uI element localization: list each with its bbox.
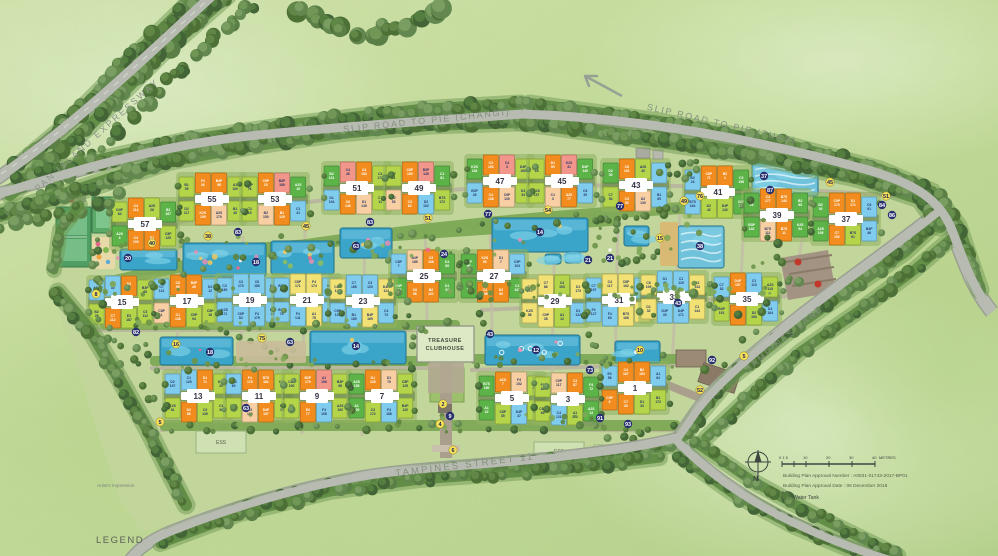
svg-text:62: 62 bbox=[408, 204, 412, 208]
svg-text:25: 25 bbox=[420, 272, 429, 281]
svg-text:103: 103 bbox=[514, 264, 520, 268]
svg-text:76: 76 bbox=[248, 187, 252, 191]
svg-text:CLUBHOUSE: CLUBHOUSE bbox=[426, 346, 465, 352]
svg-text:24: 24 bbox=[691, 180, 695, 184]
svg-text:58: 58 bbox=[608, 376, 612, 380]
svg-text:100: 100 bbox=[289, 384, 295, 388]
svg-text:12: 12 bbox=[533, 348, 539, 354]
svg-text:43: 43 bbox=[675, 301, 681, 307]
svg-text:55: 55 bbox=[185, 187, 189, 191]
svg-text:197: 197 bbox=[170, 384, 176, 388]
svg-text:119: 119 bbox=[678, 281, 684, 285]
svg-text:40: 40 bbox=[872, 455, 877, 460]
svg-text:16: 16 bbox=[173, 342, 179, 348]
svg-text:63: 63 bbox=[243, 406, 249, 412]
svg-text:14: 14 bbox=[589, 411, 593, 415]
svg-text:160: 160 bbox=[222, 288, 228, 292]
svg-text:6: 6 bbox=[451, 448, 454, 454]
svg-text:55: 55 bbox=[208, 195, 217, 204]
svg-text:115: 115 bbox=[767, 287, 773, 291]
svg-text:34: 34 bbox=[521, 193, 525, 197]
svg-text:63: 63 bbox=[608, 316, 612, 320]
svg-text:61: 61 bbox=[171, 408, 175, 412]
svg-text:77: 77 bbox=[617, 204, 623, 210]
svg-text:40: 40 bbox=[149, 241, 155, 247]
svg-text:3: 3 bbox=[566, 395, 571, 404]
svg-text:69: 69 bbox=[445, 264, 449, 268]
svg-text:64: 64 bbox=[118, 212, 122, 216]
svg-text:29: 29 bbox=[551, 297, 560, 306]
svg-text:196: 196 bbox=[321, 380, 327, 384]
svg-text:171: 171 bbox=[678, 313, 684, 317]
svg-text:86: 86 bbox=[187, 412, 191, 416]
svg-text:35: 35 bbox=[583, 193, 587, 197]
svg-text:82: 82 bbox=[133, 330, 139, 336]
svg-text:77: 77 bbox=[306, 412, 310, 416]
svg-text:185: 185 bbox=[254, 284, 260, 288]
svg-text:193: 193 bbox=[559, 285, 565, 289]
svg-text:192: 192 bbox=[834, 235, 840, 239]
svg-text:21: 21 bbox=[607, 256, 613, 262]
svg-text:175: 175 bbox=[834, 203, 840, 207]
svg-text:83: 83 bbox=[367, 220, 373, 226]
svg-text:193: 193 bbox=[133, 240, 139, 244]
svg-text:110: 110 bbox=[751, 283, 757, 287]
svg-text:TREASURE: TREASURE bbox=[428, 338, 462, 344]
svg-text:117: 117 bbox=[607, 284, 613, 288]
svg-text:12: 12 bbox=[208, 289, 212, 293]
svg-text:83: 83 bbox=[235, 230, 241, 236]
svg-text:172: 172 bbox=[439, 200, 445, 204]
svg-text:45: 45 bbox=[827, 180, 833, 186]
svg-text:37: 37 bbox=[761, 174, 767, 180]
svg-text:87: 87 bbox=[767, 188, 773, 194]
svg-text:1: 1 bbox=[633, 384, 638, 393]
svg-text:94: 94 bbox=[192, 317, 196, 321]
svg-text:7: 7 bbox=[398, 264, 400, 268]
svg-text:42: 42 bbox=[707, 208, 711, 212]
svg-text:84: 84 bbox=[879, 203, 886, 209]
svg-text:17: 17 bbox=[183, 297, 192, 306]
svg-text:120: 120 bbox=[402, 408, 408, 412]
svg-text:152: 152 bbox=[516, 382, 522, 386]
svg-text:100: 100 bbox=[232, 187, 238, 191]
svg-text:64: 64 bbox=[656, 376, 660, 380]
svg-text:53: 53 bbox=[271, 195, 280, 204]
svg-text:35: 35 bbox=[501, 414, 505, 418]
svg-text:105: 105 bbox=[818, 231, 824, 235]
svg-text:METRES: METRES bbox=[879, 455, 896, 460]
svg-text:7: 7 bbox=[500, 260, 502, 264]
svg-text:130: 130 bbox=[640, 201, 646, 205]
svg-text:41: 41 bbox=[567, 165, 571, 169]
svg-text:174: 174 bbox=[311, 284, 317, 288]
svg-text:197: 197 bbox=[591, 288, 597, 292]
svg-text:15: 15 bbox=[657, 236, 663, 242]
svg-text:61: 61 bbox=[851, 235, 855, 239]
svg-text:142: 142 bbox=[749, 227, 755, 231]
svg-text:11: 11 bbox=[782, 231, 786, 235]
svg-text:160: 160 bbox=[484, 386, 490, 390]
svg-text:125: 125 bbox=[186, 380, 192, 384]
svg-text:0 1 5: 0 1 5 bbox=[779, 455, 789, 460]
svg-text:140: 140 bbox=[781, 199, 787, 203]
svg-text:92: 92 bbox=[709, 358, 715, 364]
svg-text:9: 9 bbox=[448, 414, 451, 420]
svg-text:38: 38 bbox=[544, 317, 548, 321]
svg-text:46: 46 bbox=[867, 231, 871, 235]
svg-text:194: 194 bbox=[639, 372, 645, 376]
svg-text:198: 198 bbox=[738, 180, 744, 184]
svg-text:72: 72 bbox=[589, 387, 593, 391]
svg-text:81: 81 bbox=[440, 176, 444, 180]
svg-text:41: 41 bbox=[714, 188, 723, 197]
svg-text:26: 26 bbox=[150, 208, 154, 212]
svg-text:153: 153 bbox=[361, 172, 367, 176]
svg-text:ESS: ESS bbox=[216, 440, 227, 446]
svg-text:86: 86 bbox=[544, 285, 548, 289]
svg-text:12: 12 bbox=[560, 317, 564, 321]
svg-text:171: 171 bbox=[295, 284, 301, 288]
svg-text:131: 131 bbox=[159, 289, 165, 293]
svg-text:57: 57 bbox=[141, 220, 150, 229]
svg-text:98: 98 bbox=[413, 292, 417, 296]
svg-text:Building Plan Approval Date :: Building Plan Approval Date : 06 Decembe… bbox=[783, 483, 888, 489]
svg-text:90: 90 bbox=[499, 292, 503, 296]
svg-text:51: 51 bbox=[353, 184, 362, 193]
svg-text:24: 24 bbox=[441, 252, 448, 258]
svg-text:87: 87 bbox=[573, 383, 577, 387]
svg-text:109: 109 bbox=[200, 215, 206, 219]
svg-text:63: 63 bbox=[353, 244, 359, 250]
svg-text:53: 53 bbox=[625, 201, 629, 205]
svg-text:49: 49 bbox=[415, 184, 424, 193]
svg-text:45: 45 bbox=[303, 224, 309, 230]
svg-text:164: 164 bbox=[767, 311, 773, 315]
svg-text:N: N bbox=[753, 476, 758, 483]
svg-text:60: 60 bbox=[232, 384, 236, 388]
svg-text:58: 58 bbox=[528, 313, 532, 317]
svg-text:26: 26 bbox=[473, 193, 477, 197]
svg-text:Artist's Impression: Artist's Impression bbox=[97, 483, 135, 488]
svg-text:53: 53 bbox=[392, 200, 396, 204]
svg-text:63: 63 bbox=[287, 340, 293, 346]
svg-text:125: 125 bbox=[370, 380, 376, 384]
svg-text:95: 95 bbox=[551, 165, 555, 169]
svg-text:22: 22 bbox=[485, 410, 489, 414]
svg-text:2: 2 bbox=[441, 402, 444, 408]
svg-text:5: 5 bbox=[510, 394, 515, 403]
svg-text:130: 130 bbox=[504, 197, 510, 201]
svg-text:129: 129 bbox=[279, 215, 285, 219]
svg-text:19: 19 bbox=[246, 296, 255, 305]
svg-text:49: 49 bbox=[192, 285, 196, 289]
svg-text:23: 23 bbox=[359, 297, 368, 306]
svg-text:168: 168 bbox=[623, 316, 629, 320]
svg-text:169: 169 bbox=[407, 172, 413, 176]
svg-text:70: 70 bbox=[387, 380, 391, 384]
svg-text:52: 52 bbox=[697, 388, 703, 394]
svg-text:51: 51 bbox=[883, 194, 889, 200]
svg-text:146: 146 bbox=[345, 204, 351, 208]
svg-text:187: 187 bbox=[126, 318, 132, 322]
svg-text:4: 4 bbox=[119, 236, 121, 240]
svg-text:106: 106 bbox=[428, 260, 434, 264]
svg-text:131: 131 bbox=[329, 176, 335, 180]
svg-text:47: 47 bbox=[496, 177, 505, 186]
svg-text:170: 170 bbox=[238, 284, 244, 288]
svg-text:21: 21 bbox=[303, 296, 312, 305]
svg-text:84: 84 bbox=[239, 316, 243, 320]
svg-text:98: 98 bbox=[338, 384, 342, 388]
svg-text:155: 155 bbox=[354, 384, 360, 388]
svg-text:177: 177 bbox=[765, 199, 771, 203]
svg-text:114: 114 bbox=[133, 208, 139, 212]
svg-text:169: 169 bbox=[367, 317, 373, 321]
svg-text:164: 164 bbox=[690, 204, 696, 208]
svg-text:140: 140 bbox=[582, 169, 588, 173]
svg-text:54: 54 bbox=[609, 197, 613, 201]
svg-text:77: 77 bbox=[485, 212, 491, 218]
svg-text:142: 142 bbox=[722, 208, 728, 212]
svg-text:40: 40 bbox=[624, 404, 628, 408]
svg-text:157: 157 bbox=[735, 283, 741, 287]
svg-text:35: 35 bbox=[663, 313, 667, 317]
svg-text:71: 71 bbox=[707, 176, 711, 180]
svg-text:179: 179 bbox=[254, 316, 260, 320]
svg-text:43: 43 bbox=[487, 332, 493, 338]
svg-text:Water Tank: Water Tank bbox=[793, 495, 819, 501]
svg-text:40: 40 bbox=[641, 169, 645, 173]
svg-text:138: 138 bbox=[175, 317, 181, 321]
svg-text:102: 102 bbox=[423, 204, 429, 208]
svg-text:48: 48 bbox=[346, 172, 350, 176]
svg-text:51: 51 bbox=[425, 216, 431, 222]
svg-text:15: 15 bbox=[118, 298, 127, 307]
svg-text:3: 3 bbox=[552, 197, 554, 201]
svg-text:8: 8 bbox=[94, 292, 97, 298]
svg-text:73: 73 bbox=[384, 313, 388, 317]
svg-text:65: 65 bbox=[657, 197, 661, 201]
svg-text:33: 33 bbox=[640, 404, 644, 408]
svg-text:91: 91 bbox=[597, 416, 603, 422]
svg-text:10: 10 bbox=[637, 348, 643, 354]
svg-text:78: 78 bbox=[312, 316, 316, 320]
svg-text:191: 191 bbox=[719, 311, 725, 315]
svg-text:5: 5 bbox=[742, 354, 745, 360]
svg-text:117: 117 bbox=[184, 211, 190, 215]
svg-text:93: 93 bbox=[625, 422, 631, 428]
svg-text:121: 121 bbox=[428, 292, 434, 296]
svg-text:43: 43 bbox=[632, 181, 641, 190]
svg-text:15: 15 bbox=[264, 183, 268, 187]
svg-text:179: 179 bbox=[305, 380, 311, 384]
svg-text:47: 47 bbox=[517, 414, 521, 418]
svg-text:1: 1 bbox=[724, 176, 726, 180]
svg-text:5: 5 bbox=[158, 420, 161, 426]
svg-text:16: 16 bbox=[201, 183, 205, 187]
svg-text:14: 14 bbox=[537, 230, 544, 236]
svg-text:35: 35 bbox=[743, 295, 752, 304]
svg-text:18: 18 bbox=[207, 350, 213, 356]
svg-text:189: 189 bbox=[412, 260, 418, 264]
svg-text:59: 59 bbox=[483, 260, 487, 264]
svg-text:127: 127 bbox=[591, 312, 597, 316]
svg-text:38: 38 bbox=[205, 234, 211, 240]
svg-text:30: 30 bbox=[609, 173, 613, 177]
svg-text:193: 193 bbox=[488, 165, 494, 169]
svg-text:186: 186 bbox=[386, 412, 392, 416]
svg-text:11: 11 bbox=[378, 200, 382, 204]
svg-text:3: 3 bbox=[506, 165, 508, 169]
svg-text:13: 13 bbox=[194, 392, 203, 401]
svg-text:45: 45 bbox=[558, 177, 567, 186]
svg-text:104: 104 bbox=[329, 200, 335, 204]
svg-text:181: 181 bbox=[263, 380, 269, 384]
svg-text:40: 40 bbox=[233, 211, 237, 215]
svg-text:21: 21 bbox=[585, 258, 591, 264]
svg-text:109: 109 bbox=[646, 285, 652, 289]
svg-text:65: 65 bbox=[541, 411, 545, 415]
svg-text:107: 107 bbox=[263, 412, 269, 416]
svg-text:191: 191 bbox=[624, 169, 630, 173]
svg-text:114: 114 bbox=[383, 289, 389, 293]
svg-text:98: 98 bbox=[217, 183, 221, 187]
svg-text:160: 160 bbox=[520, 169, 526, 173]
svg-text:92: 92 bbox=[819, 207, 823, 211]
svg-text:7: 7 bbox=[502, 382, 504, 386]
svg-text:120: 120 bbox=[367, 285, 373, 289]
svg-text:189: 189 bbox=[279, 183, 285, 187]
svg-text:LEGEND: LEGEND bbox=[96, 535, 144, 546]
svg-text:76: 76 bbox=[697, 194, 703, 200]
svg-text:149: 149 bbox=[361, 204, 367, 208]
svg-text:118: 118 bbox=[472, 169, 478, 173]
svg-text:16: 16 bbox=[296, 187, 300, 191]
svg-text:18: 18 bbox=[253, 260, 259, 266]
svg-text:94: 94 bbox=[798, 227, 802, 231]
svg-text:162: 162 bbox=[623, 284, 629, 288]
svg-text:139: 139 bbox=[202, 412, 208, 416]
svg-text:9: 9 bbox=[315, 392, 320, 401]
svg-text:75: 75 bbox=[259, 336, 265, 342]
svg-text:141: 141 bbox=[295, 316, 301, 320]
svg-text:112: 112 bbox=[142, 314, 148, 318]
svg-text:39: 39 bbox=[773, 211, 782, 220]
svg-text:77: 77 bbox=[567, 197, 571, 201]
svg-text:49: 49 bbox=[681, 199, 687, 205]
svg-text:145: 145 bbox=[423, 172, 429, 176]
svg-text:82: 82 bbox=[720, 287, 724, 291]
svg-text:30: 30 bbox=[849, 455, 854, 460]
svg-text:95: 95 bbox=[798, 203, 802, 207]
svg-text:167: 167 bbox=[623, 372, 629, 376]
svg-text:18: 18 bbox=[208, 313, 212, 317]
svg-text:71: 71 bbox=[203, 380, 207, 384]
svg-text:125: 125 bbox=[402, 384, 408, 388]
svg-text:54: 54 bbox=[545, 208, 552, 214]
svg-text:144: 144 bbox=[694, 309, 700, 313]
svg-text:1: 1 bbox=[161, 313, 163, 317]
svg-text:38: 38 bbox=[697, 244, 703, 250]
svg-text:171: 171 bbox=[850, 203, 856, 207]
svg-text:27: 27 bbox=[490, 272, 499, 281]
svg-text:6: 6 bbox=[609, 400, 611, 404]
svg-text:91: 91 bbox=[867, 207, 871, 211]
svg-text:108: 108 bbox=[321, 412, 327, 416]
svg-text:117: 117 bbox=[556, 383, 562, 387]
svg-text:111: 111 bbox=[765, 231, 770, 235]
svg-text:Building Plan Approval Number: Building Plan Approval Number : A0831-01… bbox=[783, 473, 908, 479]
svg-text:178: 178 bbox=[247, 380, 253, 384]
svg-text:121: 121 bbox=[556, 415, 562, 419]
svg-text:112: 112 bbox=[110, 318, 116, 322]
svg-text:173: 173 bbox=[575, 289, 581, 293]
svg-text:172: 172 bbox=[370, 412, 376, 416]
svg-text:10: 10 bbox=[803, 455, 808, 460]
svg-text:73: 73 bbox=[587, 368, 593, 374]
svg-text:168: 168 bbox=[351, 285, 357, 289]
svg-text:37: 37 bbox=[842, 215, 851, 224]
svg-text:20: 20 bbox=[826, 455, 831, 460]
svg-text:41: 41 bbox=[296, 211, 300, 215]
svg-text:7: 7 bbox=[380, 392, 385, 401]
svg-text:11: 11 bbox=[255, 392, 264, 401]
svg-text:14: 14 bbox=[353, 344, 360, 350]
svg-text:86: 86 bbox=[889, 213, 895, 219]
svg-text:189: 189 bbox=[351, 317, 357, 321]
svg-text:170: 170 bbox=[216, 215, 222, 219]
svg-text:172: 172 bbox=[655, 400, 661, 404]
svg-text:167: 167 bbox=[165, 212, 171, 216]
svg-text:20: 20 bbox=[125, 256, 131, 262]
svg-text:193: 193 bbox=[751, 315, 757, 319]
svg-text:192: 192 bbox=[337, 408, 343, 412]
svg-text:32: 32 bbox=[647, 309, 651, 313]
svg-text:150: 150 bbox=[263, 215, 269, 219]
svg-text:122: 122 bbox=[575, 313, 581, 317]
svg-text:125: 125 bbox=[165, 236, 171, 240]
svg-text:138: 138 bbox=[488, 197, 494, 201]
